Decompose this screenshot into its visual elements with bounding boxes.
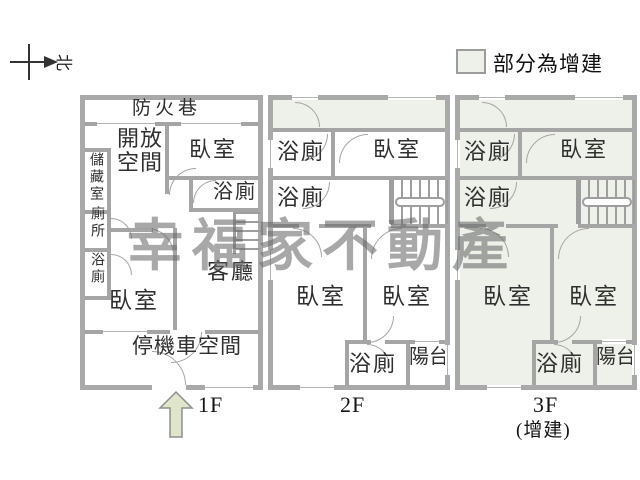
entrance-arrow-icon	[158, 390, 194, 440]
window-marker	[575, 95, 623, 100]
window-marker	[103, 329, 147, 334]
entrance-gap	[152, 385, 186, 390]
window-marker	[268, 140, 273, 168]
wall	[385, 340, 410, 344]
window-marker	[181, 121, 241, 126]
window-marker	[205, 385, 253, 390]
room-label-fire-lane: 防火巷	[132, 99, 201, 120]
room-label-bathroom-1: 浴廁	[464, 140, 512, 164]
floor-sublabel-3f-addition: (增建)	[516, 415, 571, 442]
room-label-bathroom-bottom: 浴廁	[536, 352, 584, 376]
floor-plan-canvas: 北 部分為增建	[0, 0, 640, 480]
watermark-text: 幸福家不動產	[127, 201, 517, 282]
room-label-bathroom-1: 浴廁	[277, 140, 325, 164]
window-marker	[388, 95, 436, 100]
floor-label-1f: 1F	[198, 392, 223, 418]
wall	[331, 128, 335, 180]
window-marker	[415, 339, 439, 344]
window-marker	[300, 385, 334, 390]
room-label-bathroom-top: 浴廁	[213, 181, 257, 203]
door-arc	[367, 316, 394, 343]
door-arc	[558, 228, 589, 259]
room-label-bathroom-left: 浴廁	[89, 252, 103, 296]
wall	[273, 128, 445, 132]
wall	[518, 128, 522, 180]
window-marker	[445, 345, 450, 375]
window-marker	[97, 121, 155, 126]
room-label-toilet: 廁所	[89, 206, 103, 248]
floor-label-2f: 2F	[340, 392, 365, 418]
room-label-bedroom-top: 臥室	[538, 138, 630, 162]
room-label-bedroom-left: 臥室	[466, 284, 550, 309]
room-label-parking: 停機車空間	[132, 335, 242, 358]
window-marker	[632, 345, 637, 375]
room-label-bedroom-right: 臥室	[558, 284, 630, 309]
door-arc	[482, 102, 507, 127]
stair-handrail	[582, 197, 632, 207]
window-marker	[487, 385, 521, 390]
north-label: 北	[53, 54, 78, 71]
room-label-balcony: 陽台	[596, 346, 636, 368]
room-label-bathroom-bottom: 浴廁	[349, 352, 397, 376]
wall	[460, 128, 632, 132]
room-label-storage: 儲藏室	[88, 152, 102, 212]
wall	[85, 296, 111, 300]
room-label-bedroom-top: 臥室	[189, 138, 237, 162]
window-marker	[479, 95, 505, 100]
wall	[572, 340, 597, 344]
room-label-bedroom-bottom: 臥室	[109, 288, 159, 313]
room-label-bedroom-right: 臥室	[371, 284, 443, 309]
door-arc	[554, 316, 581, 343]
window-marker	[292, 95, 318, 100]
room-label-balcony: 陽台	[409, 346, 449, 368]
room-label-bedroom-top: 臥室	[351, 138, 443, 162]
legend-label: 部分為增建	[493, 48, 603, 78]
room-label-open-space: 開放空間	[114, 127, 166, 175]
window-marker	[455, 140, 460, 168]
legend-addition-swatch	[456, 49, 486, 74]
room-label-bedroom-left: 臥室	[279, 284, 363, 309]
window-marker	[602, 339, 626, 344]
